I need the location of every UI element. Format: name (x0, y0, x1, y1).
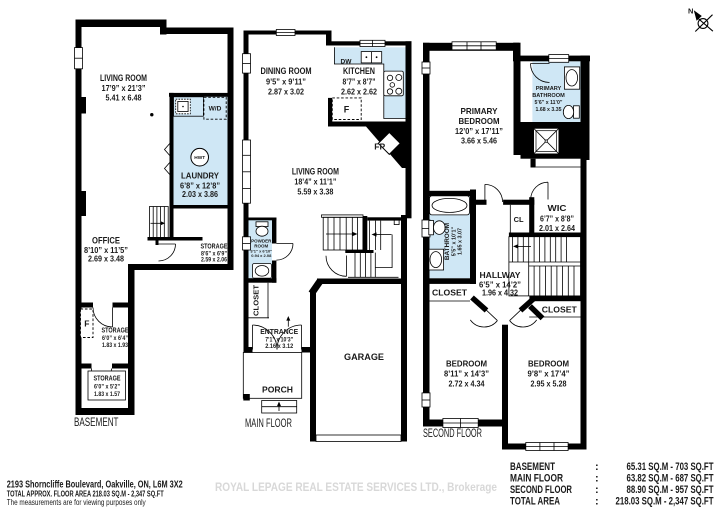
svg-text:2.87 x 3.02: 2.87 x 3.02 (268, 87, 304, 97)
svg-text:STORAGE: STORAGE (102, 328, 129, 335)
svg-text:9’8” x 17’4”: 9’8” x 17’4” (528, 369, 570, 379)
svg-text:1.83 x 1.57: 1.83 x 1.57 (94, 391, 120, 398)
svg-text:6’0” x 6’4”: 6’0” x 6’4” (102, 335, 128, 342)
svg-text:2.95 x 5.28: 2.95 x 5.28 (531, 379, 567, 389)
svg-text:9’5” x 9’11”: 9’5” x 9’11” (266, 77, 306, 87)
svg-text:PRIMARY: PRIMARY (461, 106, 498, 116)
svg-text:ENTRANCE: ENTRANCE (260, 327, 298, 336)
svg-text:BATHROOM: BATHROOM (532, 93, 565, 99)
svg-text:CLOSET: CLOSET (542, 305, 578, 315)
svg-text::: : (595, 473, 599, 485)
svg-text:1.68 x 3.35: 1.68 x 3.35 (536, 107, 562, 113)
svg-text:8’11” x 14’3”: 8’11” x 14’3” (444, 369, 489, 379)
svg-text:HALLWAY: HALLWAY (480, 270, 521, 280)
svg-text:6’7” x 8’8”: 6’7” x 8’8” (540, 215, 574, 224)
svg-text:8’7” x 8’7”: 8’7” x 8’7” (343, 77, 376, 87)
svg-text:The measurements are for viewi: The measurements are for viewing purpose… (7, 498, 146, 507)
svg-text:218.03 SQ.M - 2,347 SQ.FT: 218.03 SQ.M - 2,347 SQ.FT (616, 496, 714, 508)
svg-text:LIVING ROOM: LIVING ROOM (292, 167, 339, 177)
svg-text:DW: DW (341, 59, 353, 66)
svg-text:STORAGE: STORAGE (201, 244, 228, 251)
svg-text:BEDROOM: BEDROOM (459, 116, 500, 126)
svg-text:0.94 x 2.08: 0.94 x 2.08 (251, 253, 272, 258)
svg-text:W/D: W/D (209, 106, 222, 113)
svg-text:5.59 x 3.38: 5.59 x 3.38 (297, 187, 333, 197)
svg-text:SECOND FLOOR: SECOND FLOOR (510, 484, 572, 496)
svg-text:3.66 x 5.46: 3.66 x 5.46 (461, 136, 497, 146)
svg-text:ROYAL LEPAGE REAL ESTATE SERVI: ROYAL LEPAGE REAL ESTATE SERVICES LTD., … (215, 482, 497, 494)
svg-text:BEDROOM: BEDROOM (528, 359, 569, 369)
svg-text:PRIMARY: PRIMARY (536, 86, 562, 92)
svg-text:88.90 SQ.M - 957 SQ.FT: 88.90 SQ.M - 957 SQ.FT (627, 484, 714, 496)
svg-text:OFFICE: OFFICE (92, 236, 120, 246)
svg-text:F: F (344, 105, 350, 115)
svg-text:LIVING ROOM: LIVING ROOM (100, 73, 147, 83)
svg-text:2.69 x 3.48: 2.69 x 3.48 (88, 254, 124, 264)
svg-text:GARAGE: GARAGE (344, 352, 384, 362)
svg-text:2.16 x 3.12: 2.16 x 3.12 (265, 343, 293, 350)
svg-text:F: F (84, 319, 89, 329)
svg-text:65.31 SQ.M - 703 SQ.FT: 65.31 SQ.M - 703 SQ.FT (627, 461, 714, 473)
svg-text:PORCH: PORCH (262, 385, 293, 395)
svg-text:2.01 x 2.64: 2.01 x 2.64 (539, 224, 575, 233)
svg-text:63.82 SQ.M - 687 SQ.FT: 63.82 SQ.M - 687 SQ.FT (627, 473, 714, 485)
svg-text:2.72 x 4.34: 2.72 x 4.34 (449, 379, 485, 389)
svg-text:MAIN FLOOR: MAIN FLOOR (510, 473, 563, 485)
svg-text:CL: CL (514, 215, 524, 224)
svg-text::: : (595, 484, 599, 496)
svg-text:2.59 x 2.06: 2.59 x 2.06 (201, 257, 227, 264)
svg-text:BEDROOM: BEDROOM (446, 359, 487, 369)
svg-text:1.96 x 4.32: 1.96 x 4.32 (482, 289, 518, 298)
svg-text:DINING ROOM: DINING ROOM (261, 66, 312, 76)
svg-text:BATHROOM: BATHROOM (444, 223, 451, 260)
svg-text:BASEMENT: BASEMENT (74, 417, 119, 429)
svg-text:SECOND FLOOR: SECOND FLOOR (423, 428, 482, 440)
svg-text:12’0” x 17’11”: 12’0” x 17’11” (455, 126, 503, 136)
svg-text:CLOSET: CLOSET (252, 285, 261, 316)
svg-text:6’0” x 5’2”: 6’0” x 5’2” (94, 384, 120, 391)
svg-text:2.62 x 2.62: 2.62 x 2.62 (341, 87, 377, 97)
svg-text:LAUNDRY: LAUNDRY (181, 171, 219, 181)
svg-text:BASEMENT: BASEMENT (510, 461, 555, 473)
svg-text:18’4” x 11’1”: 18’4” x 11’1” (294, 177, 336, 187)
svg-text:17’9” x 21’3”: 17’9” x 21’3” (102, 83, 146, 93)
svg-text:TOTAL AREA: TOTAL AREA (510, 496, 560, 508)
svg-text:5.41 x 6.48: 5.41 x 6.48 (106, 93, 142, 103)
svg-text:STORAGE: STORAGE (94, 376, 121, 383)
svg-text:MAIN FLOOR: MAIN FLOOR (245, 418, 292, 430)
svg-text:CLOSET: CLOSET (432, 288, 468, 298)
svg-text::: : (595, 496, 599, 508)
svg-text:2.03 x 3.86: 2.03 x 3.86 (182, 190, 218, 199)
svg-text::: : (595, 461, 599, 473)
svg-text:KITCHEN: KITCHEN (343, 66, 375, 76)
svg-text:N: N (688, 7, 693, 16)
svg-text:5’6” x 11’0”: 5’6” x 11’0” (535, 100, 563, 106)
svg-text:HWT: HWT (194, 155, 205, 161)
svg-text:1.83 x 1.93: 1.83 x 1.93 (102, 342, 128, 349)
svg-text:FP: FP (374, 142, 385, 152)
svg-text:WIC: WIC (548, 203, 567, 213)
svg-text:1.65 x 3.07: 1.65 x 3.07 (458, 228, 464, 255)
